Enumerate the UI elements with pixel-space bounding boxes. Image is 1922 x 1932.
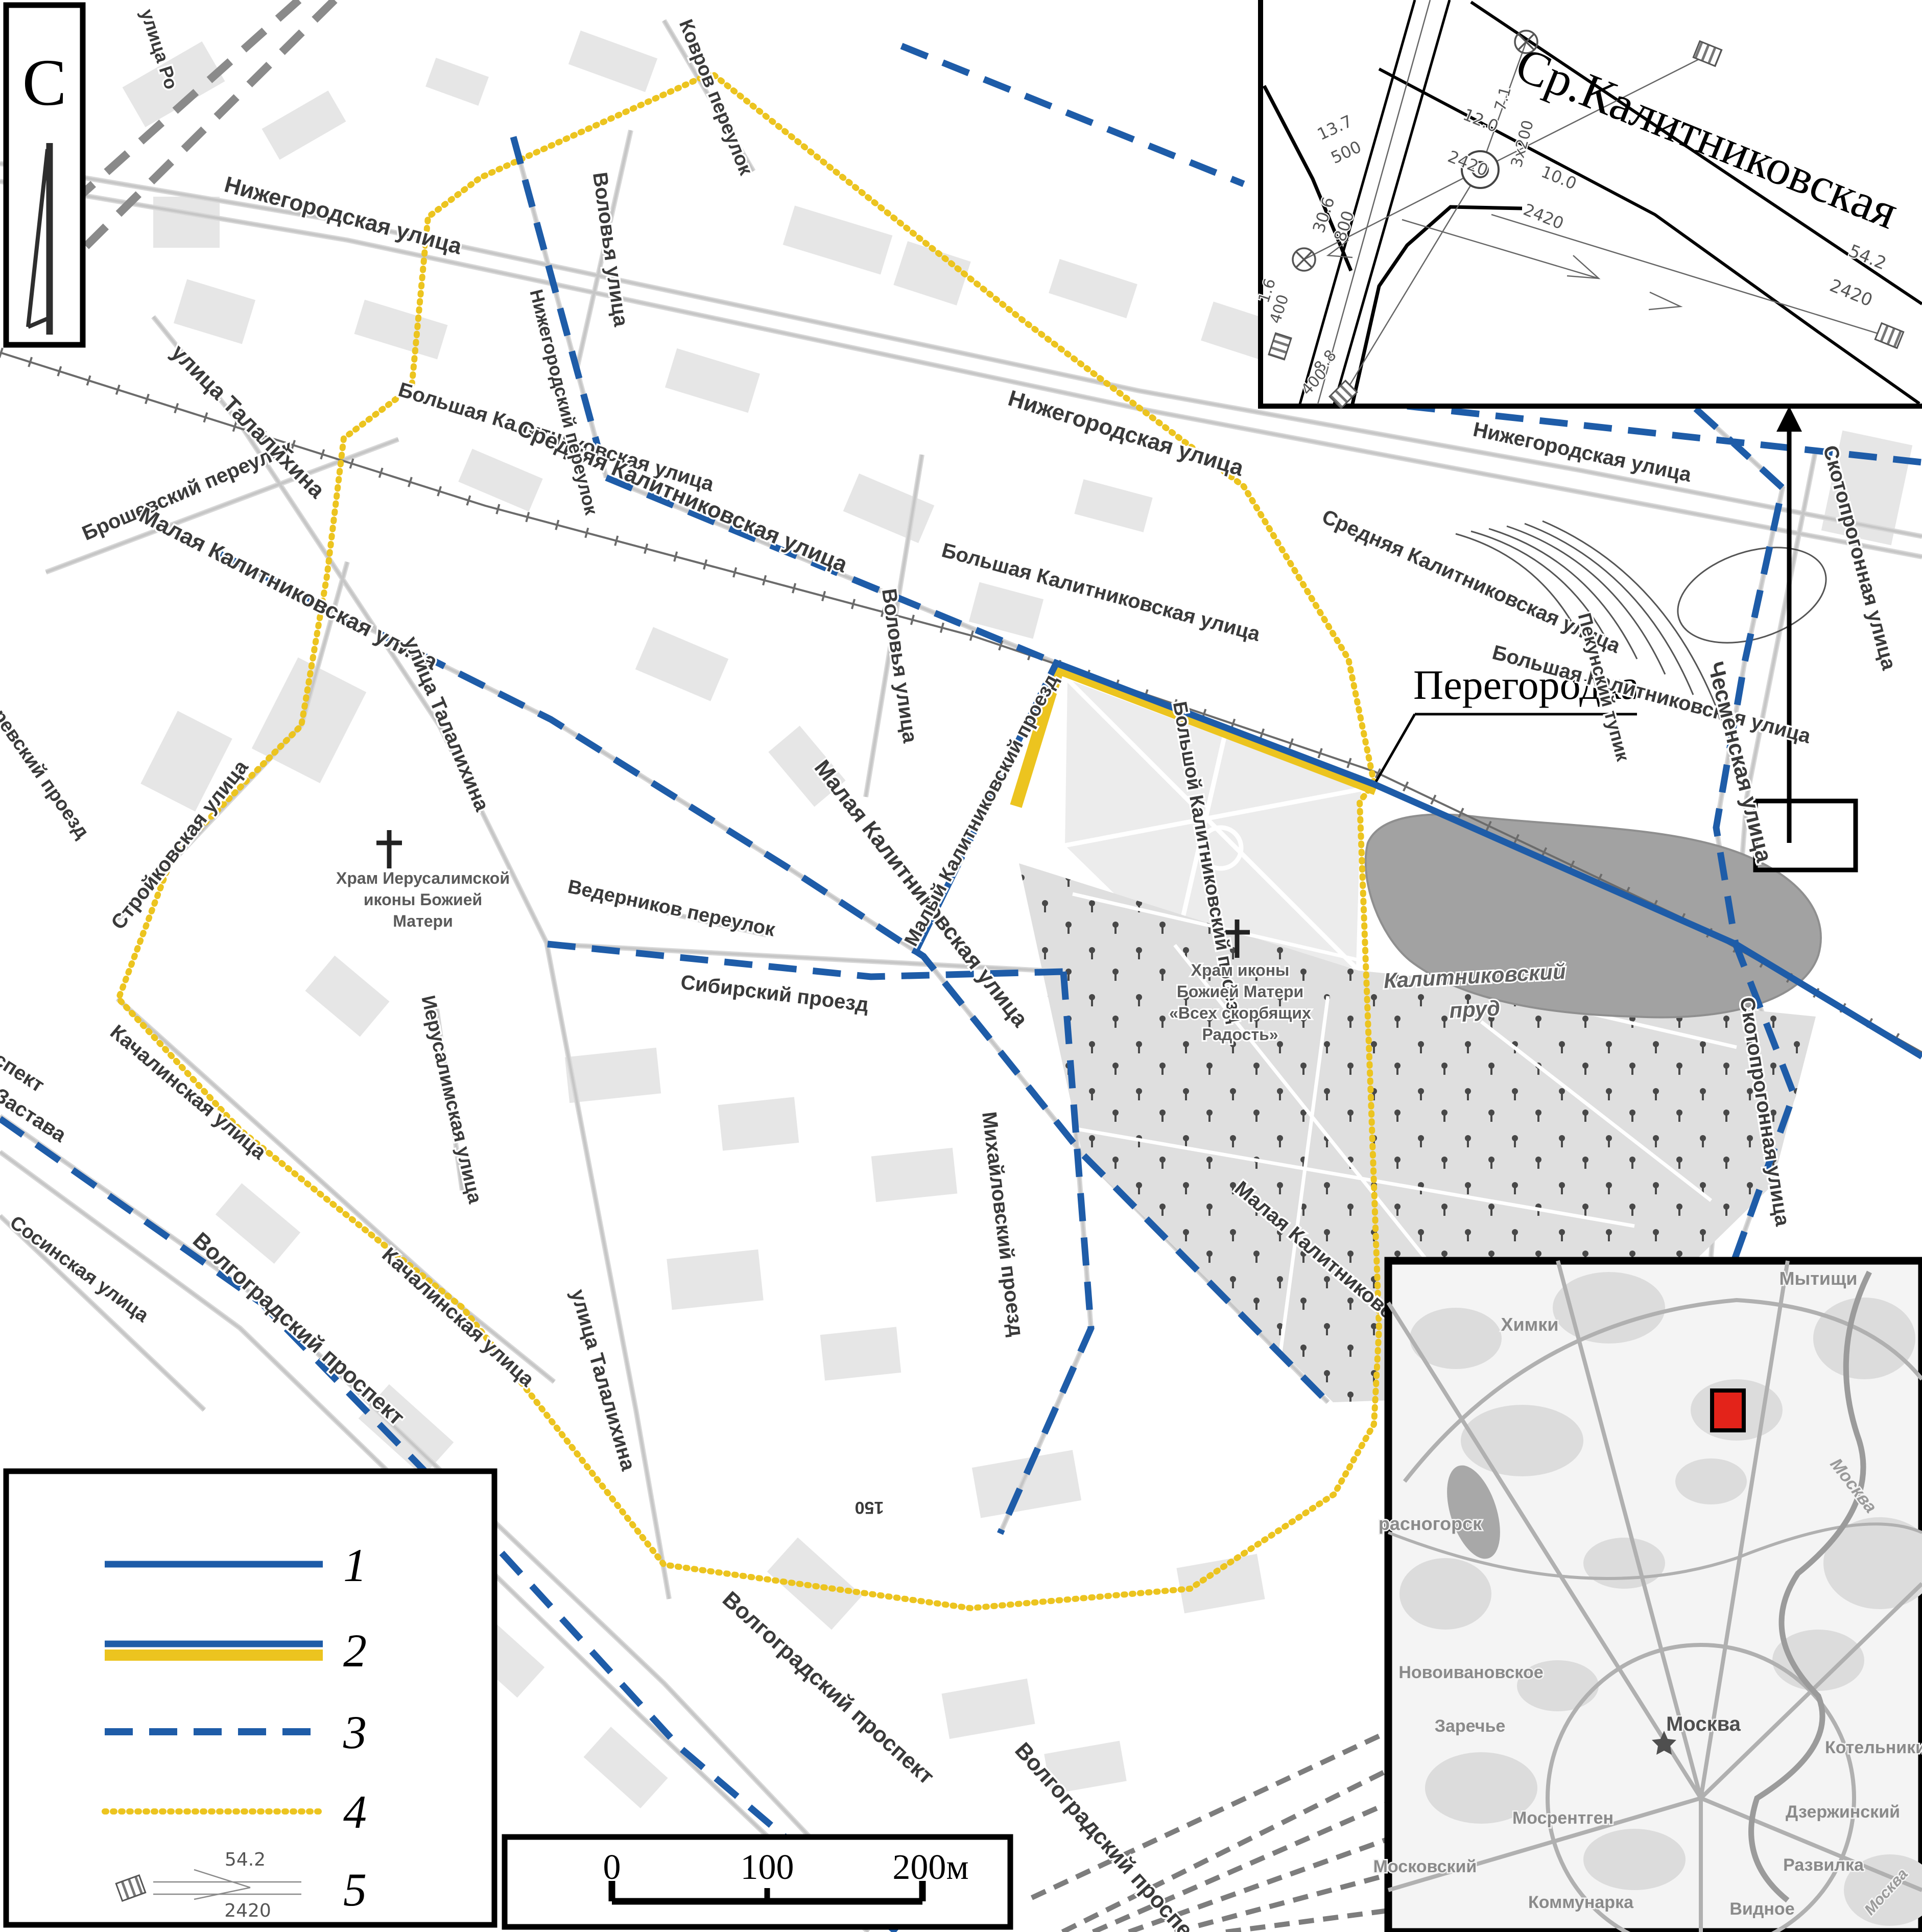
region-label: Коммунарка [1528,1893,1634,1912]
legend-label-1: 1 [343,1539,367,1591]
street-label: Сосинская улица [6,1212,153,1327]
building [665,348,760,413]
inset-survey: Ср.Калитниковская 7.13x20013.750012.0242… [1255,0,1922,408]
building [305,956,389,1037]
street-label: Храм иконы [1191,961,1290,979]
building [871,1148,958,1202]
legend: 1 2 3 4 54.2 2420 5 [6,1471,494,1925]
street-label: Радость» [1202,1025,1278,1044]
street-label: иконы Божией [364,890,482,909]
north-label: С [22,46,67,120]
street-label: 150 [855,1498,884,1517]
building [972,1450,1081,1518]
street-label: Сибирский проезд [679,971,870,1017]
street-label: Воловья улица [877,587,921,744]
region-label: Химки [1501,1314,1559,1335]
building [354,300,447,360]
region-label: Москва [1666,1713,1741,1735]
region-label: Мосрентген [1512,1808,1613,1828]
region-label: Мытищи [1779,1268,1858,1289]
street-label: Качалинская улица [377,1243,538,1392]
region-label: Новоивановское [1398,1663,1543,1682]
street-label: Михайловский проезд [978,1111,1028,1338]
street-label: ревский проезд [0,705,93,842]
street-label: Воловья улица [588,171,632,328]
building [1074,479,1152,532]
legend-label-5: 5 [343,1864,367,1916]
building [425,58,489,106]
region-label: Дзержинский [1786,1802,1900,1822]
building [941,1679,1035,1739]
building [1049,259,1137,318]
building [843,474,935,543]
street-label: Храм Иерусалимской [336,869,510,887]
region-label: расногорск [1379,1513,1482,1534]
building [568,31,657,92]
building [262,90,346,160]
street-label: Средняя Калитниковская улица [1319,505,1624,657]
street-label: Иерусалимская улица [417,994,486,1206]
street-label: улица Талалихина [399,633,493,815]
street-label: Качалинская улица [106,1021,271,1164]
building [820,1327,901,1380]
detail-connector-arrowhead [1776,406,1802,432]
building [1176,1554,1265,1613]
scalebar-tick-100: 100 [741,1848,794,1887]
north-indicator: С [6,5,83,345]
building [718,1097,799,1150]
building [583,1727,668,1808]
building [783,206,893,275]
street-label: Малая Калитниковская улица [135,502,442,675]
legend-label-2: 2 [343,1624,367,1677]
svg-text:2420: 2420 [224,1900,271,1921]
street-label: Ковров переулок [675,16,757,179]
map-figure: Перегородка улица РоНижегородская улицаН… [0,0,1922,1932]
street-label: Матери [393,912,453,930]
region-label: Московский [1373,1857,1477,1876]
scalebar: 0 100 200м [505,1837,1010,1927]
building [635,627,728,701]
street-label: пруд [1449,996,1501,1022]
legend-label-4: 4 [343,1786,367,1838]
building [153,197,220,248]
street-label: Божией Матери [1177,982,1303,1001]
building [174,279,255,344]
building [565,1048,661,1103]
region-label: Видное [1729,1899,1794,1919]
street-label: Волгоградский проспект [188,1228,409,1430]
region-label: Развилка [1783,1855,1864,1875]
legend-label-3: 3 [343,1706,367,1758]
building [667,1250,763,1310]
region-label: Заречье [1435,1716,1506,1736]
callout-leader [1376,714,1415,782]
inset-region: МытищиХимкирасногорскМоскваМоскваНовоива… [1373,1261,1922,1932]
region-label: Котельники [1825,1738,1922,1757]
study-area-marker [1712,1391,1744,1430]
svg-text:54.2: 54.2 [225,1849,266,1870]
street-label: «Всех скорбящих [1169,1004,1311,1022]
scalebar-tick-200: 200м [892,1848,968,1887]
street-label: Ведерников переулок [566,876,777,941]
